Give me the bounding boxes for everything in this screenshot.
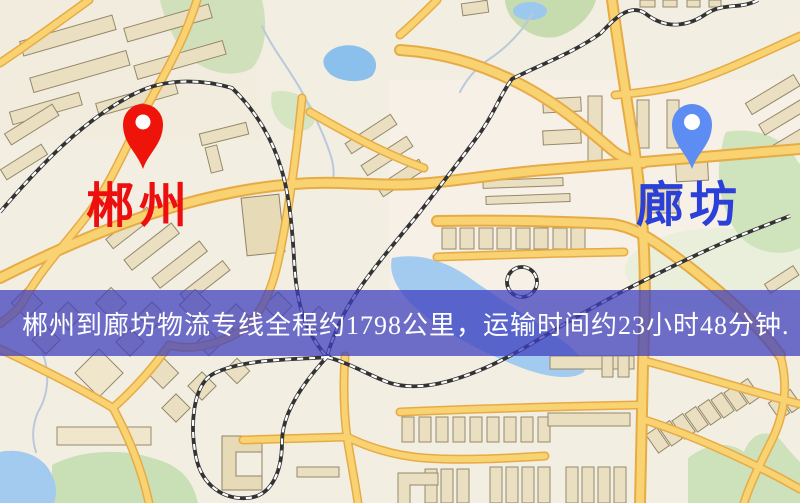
- route-banner-text: 郴州到廊坊物流专线全程约1798公里，运输时间约23小时48分钟.: [0, 305, 790, 342]
- map-image: 郴州 廊坊: [0, 0, 800, 503]
- route-banner: 郴州到廊坊物流专线全程约1798公里，运输时间约23小时48分钟.: [0, 290, 800, 356]
- origin-label: 郴州: [86, 180, 192, 233]
- destination-label: 廊坊: [636, 179, 742, 232]
